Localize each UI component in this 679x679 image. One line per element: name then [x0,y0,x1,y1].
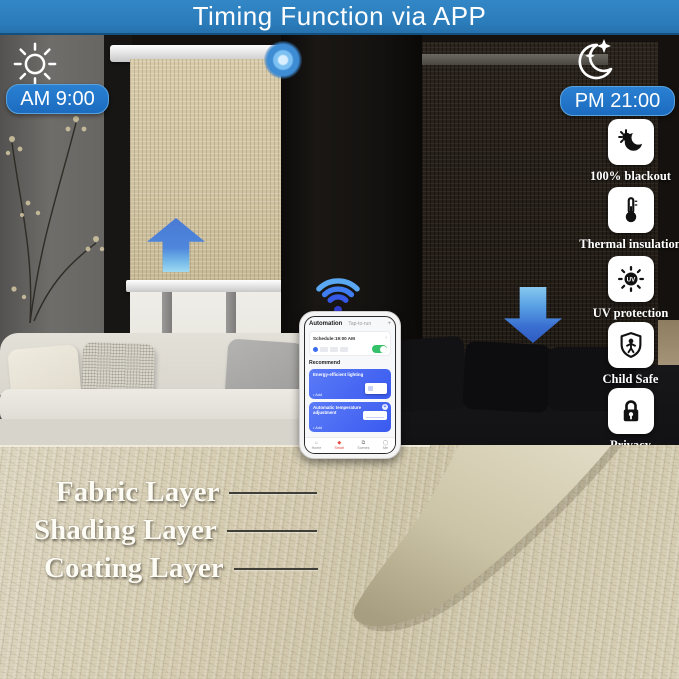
uv-sun-icon: UV [608,256,654,302]
smart-motor-icon [264,41,302,79]
feature-uv: UV UV protection [580,256,679,321]
feature-label: 100% blackout [590,169,671,184]
feature-privacy: Privacy [580,388,679,453]
feature-thermal: Thermal insulation [580,187,679,252]
layer-label: Fabric Layer [56,476,219,509]
card-add-action[interactable]: Add [313,426,322,430]
app-tab-bar: Automation Tap-to-run + [309,321,391,327]
recommend-card-temperature[interactable]: + Automatic temperature adjustment Add [309,402,391,432]
pillow [462,341,551,413]
schedule-title: Schedule:19:00 AM [313,336,355,341]
home-icon: ⌂ [315,441,318,445]
phone-screen: Automation Tap-to-run + Schedule:19:00 A… [304,316,396,454]
app-automation-screen: Automation Tap-to-run + Schedule:19:00 A… [305,317,395,453]
card-add-action[interactable]: Add [313,393,322,397]
svg-text:UV: UV [626,277,636,284]
smartphone: Automation Tap-to-run + Schedule:19:00 A… [299,311,401,459]
blind-bottom-bar [126,280,286,292]
recommend-heading: Recommend [309,360,391,366]
night-time-badge: PM 21:00 [560,86,675,116]
day-time-badge: AM 9:00 [6,84,109,114]
placeholder-block [340,347,348,352]
smart-icon: ◆ [337,441,341,445]
product-infographic: Timing Function via APP [0,0,679,679]
ac-illustration [363,411,387,420]
card-title: Automatic temperature adjustment [313,405,365,416]
layer-label: Shading Layer [34,514,217,547]
device-dot-icon [313,347,318,352]
day-time-label: AM 9:00 [20,88,94,111]
me-icon: ◯ [383,441,389,445]
layer-callout-shading: Shading Layer [34,514,317,547]
scenes-icon: ⧉ [362,441,366,445]
feature-label: Thermal insulation [579,237,679,252]
moon-stars-icon [566,37,618,89]
header-banner: Timing Function via APP [0,0,679,35]
blackout-icon [608,119,654,165]
nav-me[interactable]: ◯ Me [383,441,389,450]
page-title: Timing Function via APP [193,1,487,32]
layer-callout-fabric: Fabric Layer [56,476,317,509]
nav-scenes[interactable]: ⧉ Scenes [357,441,369,450]
feature-label: UV protection [593,306,669,321]
card-plus-icon[interactable]: + [382,404,388,410]
card-title: Energy-efficient lighting [313,372,365,377]
switch-illustration [365,383,387,394]
schedule-card[interactable]: Schedule:19:00 AM › [309,331,391,356]
placeholder-block [320,347,328,352]
padlock-icon [608,388,654,434]
leader-line [227,530,317,532]
toggle-knob [380,346,387,353]
tab-automation[interactable]: Automation [309,321,342,327]
sun-icon [12,41,58,87]
night-time-label: PM 21:00 [575,90,661,113]
feature-label: Child Safe [603,372,659,387]
schedule-toggle[interactable] [372,345,387,353]
feature-child-safe: Child Safe [580,322,679,387]
nav-home[interactable]: ⌂ Home [312,441,322,450]
layer-callout-coating: Coating Layer [44,552,318,585]
thermometer-icon [608,187,654,233]
leader-line [234,568,318,570]
leader-line [229,492,317,494]
child-safe-shield-icon [608,322,654,368]
nav-smart[interactable]: ◆ Smart [335,441,345,450]
recommend-card-lighting[interactable]: Energy-efficient lighting Add [309,369,391,399]
layer-label: Coating Layer [44,552,224,585]
chevron-right-icon: › [385,335,387,341]
add-automation-icon[interactable]: + [387,321,391,327]
app-bottom-nav: ⌂ Home ◆ Smart ⧉ Scenes ◯ Me [305,437,395,453]
feature-blackout: 100% blackout [580,119,679,184]
wifi-icon [305,261,371,317]
placeholder-block [330,347,338,352]
day-roller-blind [130,59,281,282]
tab-tap-to-run[interactable]: Tap-to-run [348,321,371,327]
